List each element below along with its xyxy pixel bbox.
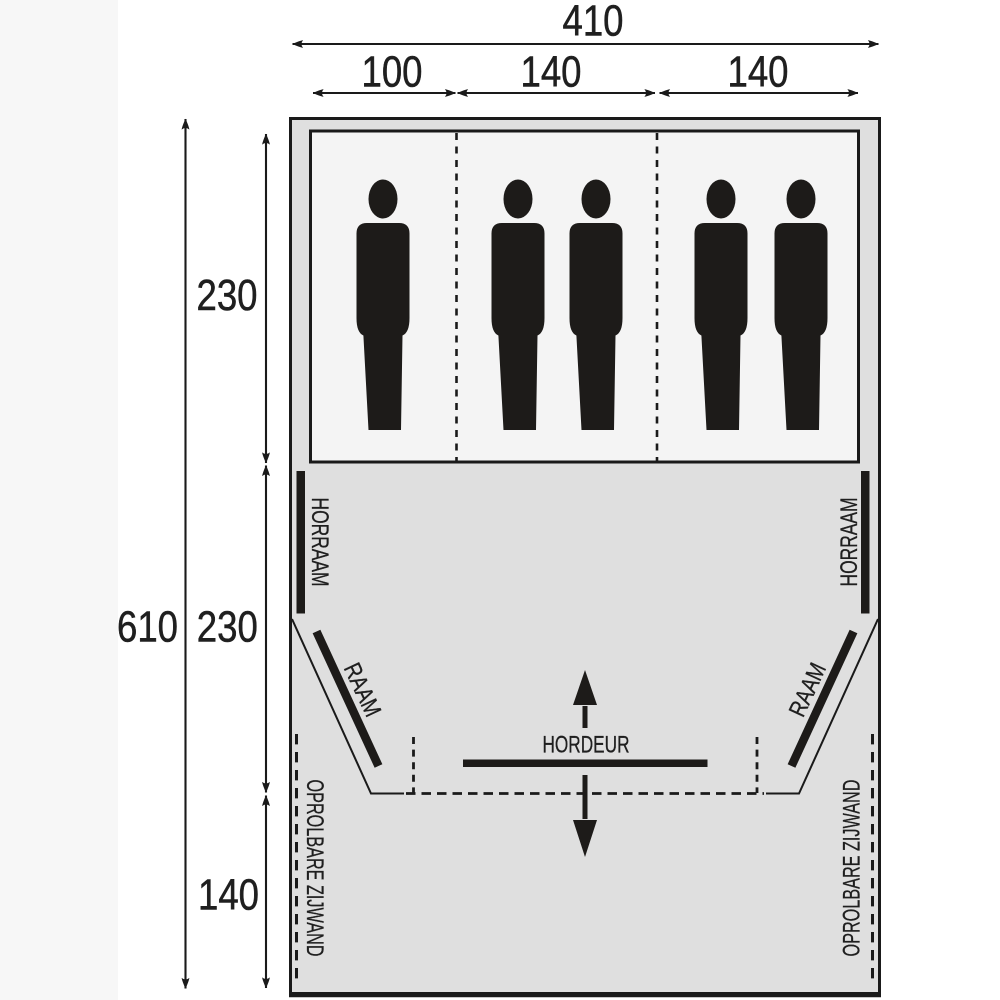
svg-text:100: 100 [362, 48, 423, 97]
svg-text:HORRAAM: HORRAAM [836, 498, 863, 587]
svg-text:410: 410 [563, 0, 624, 46]
svg-text:HORDEUR: HORDEUR [543, 732, 630, 759]
svg-text:610: 610 [117, 603, 178, 652]
svg-text:230: 230 [197, 271, 258, 320]
svg-text:140: 140 [198, 871, 259, 920]
svg-text:140: 140 [728, 48, 789, 97]
svg-text:OPROLBARE ZIJWAND: OPROLBARE ZIJWAND [301, 780, 328, 957]
svg-text:HORRAAM: HORRAAM [306, 498, 333, 587]
svg-text:OPROLBARE ZIJWAND: OPROLBARE ZIJWAND [839, 780, 866, 957]
svg-text:140: 140 [521, 48, 582, 97]
svg-text:230: 230 [197, 603, 258, 652]
